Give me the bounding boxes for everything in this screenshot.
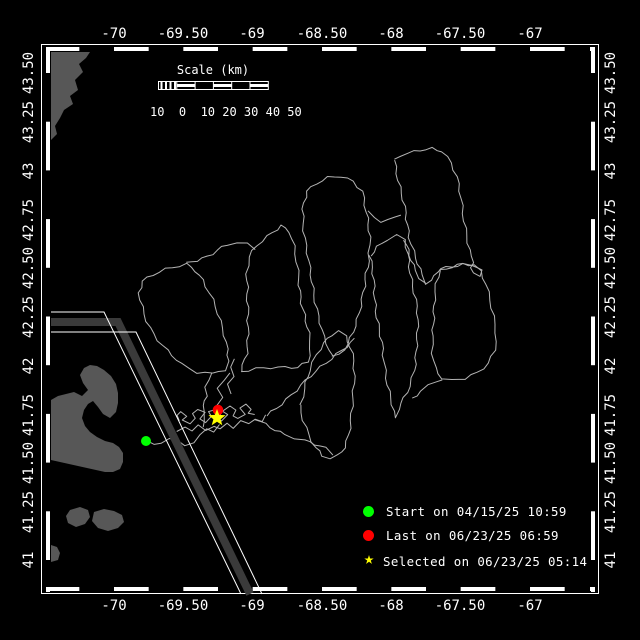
glider-track-polyline [394, 147, 482, 284]
lon-label-top: -68.50 [287, 26, 357, 42]
legend-item-selected: ★ Selected on 06/23/25 05:14 [363, 552, 587, 570]
map-content [51, 52, 496, 562]
glider-track-polyline [300, 331, 355, 459]
scale-bar-ticks: 10 0 10 20 30 40 50 [150, 105, 302, 119]
lon-label-bottom: -69.50 [148, 598, 218, 614]
legend-item-start: Start on 04/15/25 10:59 [363, 502, 567, 520]
selected-legend-label: Selected on 06/23/25 05:14 [383, 554, 587, 569]
legend-item-last: Last on 06/23/25 06:59 [363, 526, 559, 544]
lon-label-top: -69.50 [148, 26, 218, 42]
lon-label-bottom: -70 [79, 598, 149, 614]
land-polygon [66, 507, 90, 527]
scale-bar [159, 82, 269, 90]
track-map-figure: -70 -69.50 -69 -68.50 -68 -67.50 -67 -70… [0, 0, 640, 640]
glider-track-polyline [203, 373, 212, 428]
start-legend-label: Start on 04/15/25 10:59 [386, 504, 567, 519]
lon-label-bottom: -67 [495, 598, 565, 614]
scale-bar-title: Scale (km) [153, 63, 273, 77]
land-polygon [92, 509, 124, 531]
glider-track-polyline [138, 263, 229, 373]
lon-label-top: -68 [356, 26, 426, 42]
last-legend-label: Last on 06/23/25 06:59 [386, 528, 559, 543]
glider-track-polyline [369, 235, 419, 418]
lon-label-bottom: -67.50 [425, 598, 495, 614]
start-marker[interactable] [141, 436, 151, 446]
land-polygon [51, 545, 60, 562]
lon-label-top: -70 [79, 26, 149, 42]
glider-track-polyline [368, 211, 401, 223]
lat-label-left: 41 [21, 525, 37, 595]
land-polygon [51, 52, 90, 140]
glider-track-polyline [255, 420, 333, 456]
glider-track-polyline [431, 263, 496, 379]
lon-label-top: -69 [217, 26, 287, 42]
lon-label-bottom: -69 [217, 598, 287, 614]
glider-track-polyline [302, 177, 371, 357]
lon-label-top: -67 [495, 26, 565, 42]
glider-track-polyline [228, 359, 235, 394]
start-legend-icon [363, 506, 374, 517]
lon-label-bottom: -68.50 [287, 598, 357, 614]
glider-track-polyline [267, 338, 354, 416]
last-legend-icon [363, 530, 374, 541]
glider-track-polyline [412, 380, 442, 398]
lat-label-right: 41 [603, 525, 619, 595]
selected-legend-star-icon: ★ [360, 552, 378, 570]
glider-track-polyline [186, 243, 255, 262]
lon-label-bottom: -68 [356, 598, 426, 614]
lon-label-top: -67.50 [425, 26, 495, 42]
map-canvas[interactable] [0, 0, 640, 640]
land-polygon [51, 365, 123, 472]
